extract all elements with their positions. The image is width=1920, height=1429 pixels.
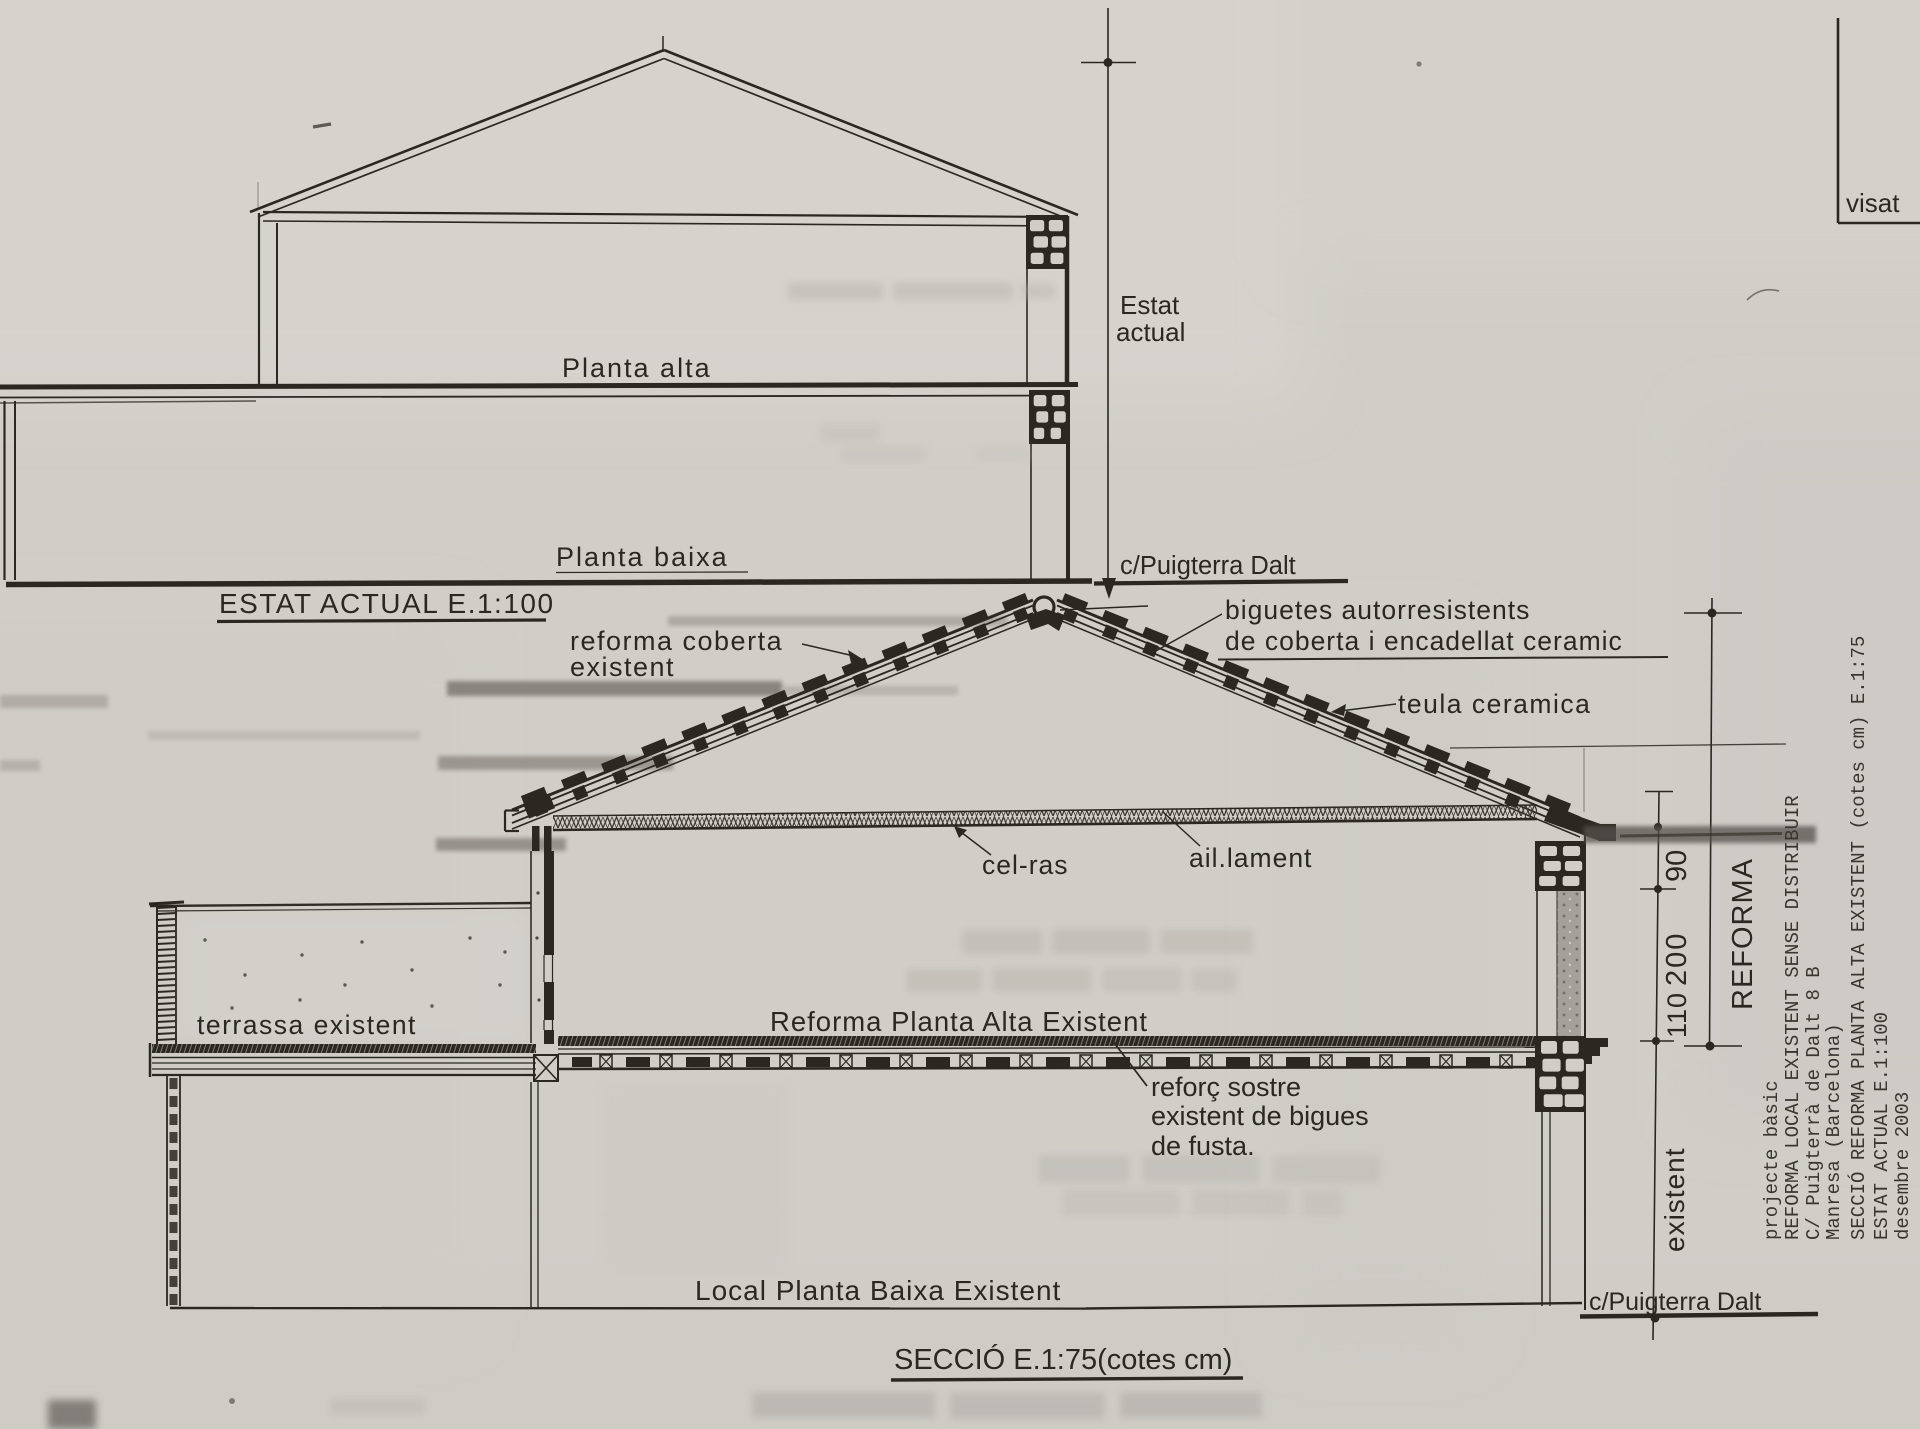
svg-text:Planta baixa: Planta baixa [556,542,729,572]
svg-text:SECCIÓ REFORMA PLANTA ALTA EXI: SECCIÓ REFORMA PLANTA ALTA EXISTENT (cot… [1848,636,1870,1240]
svg-text:c/Puigterra Dalt: c/Puigterra Dalt [1589,1288,1761,1316]
svg-text:Manresa (Barcelona): Manresa (Barcelona) [1823,1023,1845,1240]
svg-text:Planta alta: Planta alta [562,353,712,383]
svg-text:REFORMA LOCAL EXISTENT SENSE D: REFORMA LOCAL EXISTENT SENSE DISTRIBUIR [1782,795,1804,1240]
svg-text:de coberta i encadellat cerami: de coberta i encadellat ceramic [1225,626,1623,656]
svg-text:actual: actual [1116,317,1185,347]
svg-text:SECCIÓ E.1:75(cotes cm): SECCIÓ E.1:75(cotes cm) [894,1343,1232,1376]
svg-text:reforç sostre: reforç sostre [1151,1072,1301,1102]
svg-text:110: 110 [1662,992,1692,1038]
svg-text:REFORMA: REFORMA [1727,858,1759,1010]
svg-text:projecte bàsic: projecte bàsic [1761,1080,1783,1240]
svg-text:90: 90 [1661,850,1693,882]
svg-text:existent de bigues: existent de bigues [1151,1101,1369,1131]
svg-text:visat: visat [1846,188,1900,218]
svg-text:c/Puigterra Dalt: c/Puigterra Dalt [1120,552,1296,580]
svg-text:ESTAT ACTUAL E.1:100: ESTAT ACTUAL E.1:100 [1871,1012,1893,1240]
svg-text:de fusta.: de fusta. [1151,1131,1255,1161]
svg-text:desembre 2003: desembre 2003 [1892,1092,1914,1240]
svg-text:teula ceramica: teula ceramica [1398,689,1591,719]
svg-text:Local Planta Baixa Existent: Local Planta Baixa Existent [695,1275,1061,1306]
svg-text:biguetes autorresistents: biguetes autorresistents [1225,595,1530,625]
svg-text:200: 200 [1661,932,1693,986]
svg-text:ESTAT ACTUAL E.1:100: ESTAT ACTUAL E.1:100 [219,588,555,619]
svg-text:existent: existent [570,652,675,682]
svg-text:terrassa existent: terrassa existent [197,1010,417,1040]
svg-text:ail.lament: ail.lament [1189,843,1312,873]
svg-text:C/ Puigterrà de Dalt 8 B: C/ Puigterrà de Dalt 8 B [1803,966,1825,1240]
svg-text:cel-ras: cel-ras [982,850,1069,880]
svg-text:Reforma Planta Alta Existent: Reforma Planta Alta Existent [770,1006,1148,1037]
svg-text:existent: existent [1659,1148,1690,1253]
svg-text:Estat: Estat [1120,290,1180,320]
